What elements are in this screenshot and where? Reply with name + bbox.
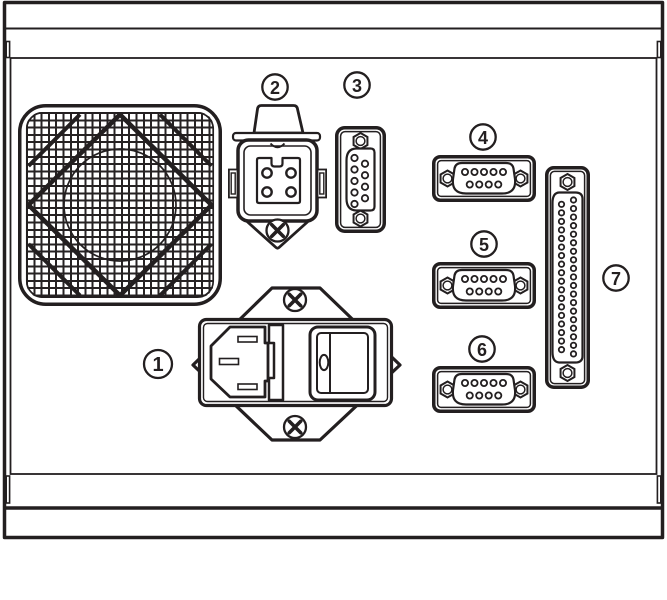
callout-5: 5: [471, 231, 496, 256]
callout-7-number: 7: [611, 269, 621, 289]
d-sub-9-connector-5: [434, 264, 535, 308]
chassis-tab: [657, 42, 660, 58]
fan-grille: [20, 106, 221, 305]
d-sub-9-connector-vertical: [337, 128, 385, 232]
callout-3: 3: [344, 72, 369, 97]
fan-opening-circle: [64, 149, 176, 261]
callout-4: 4: [470, 124, 495, 149]
d-sub-9-connector-6: [434, 368, 535, 412]
callout-6: 6: [469, 336, 494, 361]
fan-guard-octagon: [29, 115, 212, 296]
callout-1-number: 1: [152, 354, 163, 376]
callout-3-number: 3: [352, 76, 362, 96]
chassis-tab: [657, 476, 660, 503]
callout-4-number: 4: [478, 128, 488, 148]
square-power-connector: [229, 106, 326, 249]
callout-7: 7: [603, 265, 628, 290]
connector-hood: [254, 106, 303, 134]
chassis-tab: [6, 476, 9, 503]
callout-2: 2: [262, 74, 287, 99]
rear-panel-diagram: 1 2 3 4 5 6 7: [0, 0, 667, 600]
callout-1: 1: [144, 350, 172, 378]
chassis-tab: [6, 42, 9, 58]
d-sub-9-connector-4: [434, 157, 535, 201]
rocker-switch: [310, 327, 375, 400]
screw-icon: [267, 220, 289, 242]
d-sub-37-connector-vertical: [547, 168, 589, 388]
panel-line-art: 1 2 3 4 5 6 7: [0, 0, 667, 540]
iec-power-inlet-module: [193, 288, 400, 440]
callout-2-number: 2: [270, 78, 280, 98]
callout-5-number: 5: [479, 235, 489, 255]
callout-6-number: 6: [477, 340, 487, 360]
fan-guard-diamond: [29, 115, 212, 296]
